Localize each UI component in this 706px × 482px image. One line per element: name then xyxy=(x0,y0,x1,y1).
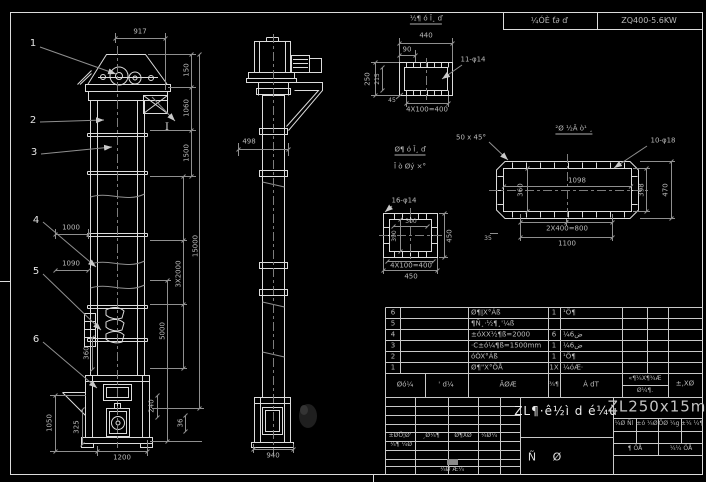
bom-row-name: ±óXX½¶ß=2000 xyxy=(471,332,530,339)
detail-a-h2: 215 xyxy=(375,73,381,84)
detail-a-h: 250 xyxy=(365,72,372,85)
bom-row-name: Ø¶ĮX°Áß xyxy=(471,310,501,317)
detail-b-pitch: 2X400=800 xyxy=(546,226,588,233)
bom-row-no: 4 xyxy=(391,332,395,339)
detail-b-inner-w: 1098 xyxy=(568,178,586,185)
bom-row-qty: 6 xyxy=(552,332,556,339)
detail-a-offset: 90 xyxy=(403,47,412,54)
bom-row-material: ¹Ö¶ xyxy=(563,354,576,361)
bom-header-seq: Øó¼ xyxy=(397,382,414,389)
dim-side-base-w: 940 xyxy=(266,453,279,460)
dim-side-casing-w: 498 xyxy=(242,139,255,146)
bom-row-qty: 1 xyxy=(552,343,556,350)
detail-a-weld: 45 xyxy=(388,98,396,104)
dim-head-h: 150 xyxy=(184,63,191,76)
bom-header-material: Á dT xyxy=(583,382,599,389)
bom-row-material: ¼6ض xyxy=(563,343,583,350)
bom-row-name: óÒX°Áß xyxy=(471,354,498,361)
header-power-spec: ZQ400-5.6KW xyxy=(621,17,677,25)
sheet-count-label: ¶ ÖÅ xyxy=(628,446,643,452)
sig-label: ±ØÖ¦Ø' xyxy=(389,433,412,439)
bom-row-name: ¶Ñ¸·½¶¸'¼ß xyxy=(471,321,514,328)
detail-b-holes: 10-φ18 xyxy=(651,138,676,145)
detail-b-w: 1100 xyxy=(558,241,576,248)
callout-3: 3 xyxy=(31,148,37,158)
bom-header-qty: ¾¶ xyxy=(549,382,559,388)
side-view-linework xyxy=(239,34,323,455)
detail-b-h2: 470 xyxy=(663,183,670,196)
detail-a-pitch: 4X100=400 xyxy=(406,107,448,114)
bom-row-qty: 1X xyxy=(549,365,558,372)
bom-row-material: ¼6ض xyxy=(563,332,583,339)
detail-c-h: 450 xyxy=(447,229,454,242)
detail-c-inner-h: 390 xyxy=(392,230,398,241)
dim-chute-h: 360 xyxy=(84,346,91,359)
dim-plate-t: 36 xyxy=(178,419,185,428)
dimension-ticks xyxy=(54,37,674,454)
info-label: ÖØ ¼g xyxy=(659,421,680,427)
sig-row2: ¼¶ ¼Ø xyxy=(390,442,412,448)
bom-row-name: Ø¶"X°ÖÅ xyxy=(471,365,503,372)
detail-a-holes: 11-φ14 xyxy=(461,57,486,64)
sig-label: Ø¶XØ xyxy=(454,433,471,439)
highlighted-cell xyxy=(447,459,458,465)
detail-b-chamfer: 50 x 45° xyxy=(456,135,486,142)
detail-a-title: ½¶ ó Ī¸ ď xyxy=(410,16,442,25)
dim-top-width: 917 xyxy=(133,29,146,36)
detail-b-title: ²Ø ½Ã ò¹ ¸ xyxy=(555,126,592,135)
detail-b-inner-h: 360 xyxy=(518,183,525,196)
sig-label: ¸Ø¼¶ xyxy=(422,433,439,439)
dim-door-h: 325 xyxy=(74,420,81,433)
callout-4: 4 xyxy=(33,216,39,226)
header-process-note: ¼ÓÈ ť∂ ď xyxy=(531,17,568,25)
detail-top-flange-linework xyxy=(371,38,462,107)
dim-lower-h: 5000 xyxy=(160,322,167,340)
bom-header-code: ' d¼ xyxy=(438,382,453,389)
info-label: ±ó ¼Ø xyxy=(636,421,657,427)
detail-c-holes: 16-φ14 xyxy=(392,198,417,205)
callout-2: 2 xyxy=(30,116,36,126)
bom-header-weight-bottom: Ø¼¶. xyxy=(637,388,653,394)
bom-row-material: ¼óÆ· xyxy=(563,365,583,372)
detail-c-inner-w: 300 xyxy=(405,219,416,225)
bom-row-no: 2 xyxy=(391,354,395,361)
sig-label: ¼Ø¼ xyxy=(481,433,497,439)
detail-c-pitch: 4X100=400 xyxy=(390,263,432,270)
sheet-number-label: ¼¼ ÖÅ xyxy=(670,446,692,452)
dim-upper-h: 1500 xyxy=(184,144,191,162)
cad-canvas: ¼ÓÈ ť∂ ď ZQ400-5.6KW 1 2 3 4 5 6 I 917 1… xyxy=(0,0,706,482)
note-line1: Ø¶ ó Ī¸ ď xyxy=(395,147,426,156)
callout-5: 5 xyxy=(33,267,39,277)
bom-row-no: 1 xyxy=(391,365,395,372)
bom-row-name: ·C±ó¼¶ß=1500mm xyxy=(471,343,541,350)
bom-header-weight-top: «¶¼X¶¾Æ xyxy=(629,376,662,382)
cursor-smudge xyxy=(299,404,317,428)
detail-c-w: 450 xyxy=(404,274,417,281)
bom-table-grid xyxy=(386,308,703,475)
bom-row-material: ¹Ö¶ xyxy=(563,310,576,317)
callout-6: 6 xyxy=(33,335,39,345)
drawing-title: ZL¶·ê½ì d é¼ù xyxy=(514,405,618,417)
dim-foot-h: 240 xyxy=(149,399,156,412)
detail-a-w: 440 xyxy=(419,33,432,40)
stage-char-left: Ñ xyxy=(528,452,536,463)
stage-char-right: Ø xyxy=(553,452,562,463)
section-mark: I xyxy=(165,123,169,133)
info-label: ±¼ ¼¶ xyxy=(681,421,703,427)
sig-footer: ¼Ø Æ¼ xyxy=(440,467,464,473)
dim-w1: 1000 xyxy=(62,225,80,232)
dim-base-w: 1200 xyxy=(113,455,131,462)
dim-boot-h: 1050 xyxy=(47,414,54,432)
callout-1: 1 xyxy=(30,39,36,49)
detail-b-t: 35 xyxy=(484,236,492,242)
bom-row-no: 6 xyxy=(391,310,395,317)
bom-header-remark: ±,XØ xyxy=(676,381,694,388)
info-label: ¼Ø Ñl xyxy=(615,421,634,427)
detail-b-h1: 398 xyxy=(639,183,646,196)
bom-row-no: 5 xyxy=(391,321,395,328)
front-view-linework xyxy=(63,46,176,448)
bom-row-no: 3 xyxy=(391,343,395,350)
dim-sections: 3X2000 xyxy=(176,260,183,287)
bom-row-qty: 1 xyxy=(552,310,556,317)
drawing-model: ZL250x15m xyxy=(608,400,706,415)
bom-row-qty: 1 xyxy=(552,354,556,361)
bom-header-name: ÃØÆ xyxy=(499,382,516,389)
dim-total-h: 15000 xyxy=(193,235,200,257)
note-line2: Ī ò Øý ×° xyxy=(394,164,426,171)
dim-head-h2: 1060 xyxy=(184,99,191,117)
dim-w2: 1090 xyxy=(62,261,80,268)
